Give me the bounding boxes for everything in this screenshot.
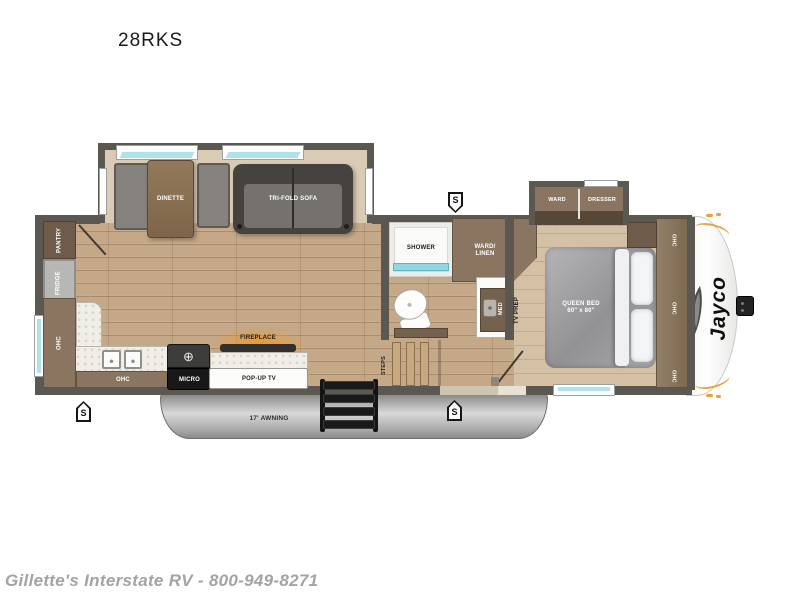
vanity-sink	[483, 299, 497, 317]
pop-up-tv-label: POP-UP TV	[228, 375, 290, 384]
bed-blanket	[615, 249, 629, 366]
page-title: 28RKS	[118, 30, 183, 52]
fireplace	[220, 344, 296, 352]
speaker-marker-letter: S	[447, 408, 462, 417]
ohc-label: OHC	[105, 376, 141, 385]
window	[365, 168, 373, 215]
bed-pillow	[631, 309, 653, 362]
kitchen-counter	[210, 352, 308, 369]
dinette-label: DINETTE	[151, 195, 190, 204]
dinette-table: DINETTE	[147, 160, 194, 238]
step	[420, 342, 429, 386]
bedroom-ohc-bank: OHC OHC OHC	[656, 218, 688, 388]
ohc-label: OHC	[54, 329, 66, 357]
window	[553, 384, 615, 396]
entry-steps	[320, 378, 378, 433]
shower: SHOWER	[389, 222, 453, 277]
ohc-label: OHC	[668, 363, 678, 389]
bedroom-corner-cabinet	[627, 222, 657, 248]
fireplace-label: FIREPLACE	[216, 334, 300, 343]
shower-label: SHOWER	[398, 244, 444, 253]
tv-prep-label: TV PREP	[513, 290, 522, 330]
queen-bed: QUEEN BED 60" x 80"	[545, 247, 656, 368]
fridge-label: FRIDGE	[53, 266, 65, 300]
speaker-marker: S	[448, 192, 463, 213]
awning-label: 17' AWNING	[238, 414, 300, 424]
speaker-marker: S	[76, 401, 91, 422]
dinette-bench	[197, 163, 230, 228]
entry-landing	[440, 386, 498, 395]
bath-threshold	[394, 328, 448, 338]
bedroom-door-opening	[498, 386, 526, 395]
dresser-label: DRESSER	[581, 196, 623, 204]
window	[99, 168, 107, 215]
tri-fold-sofa: TRI-FOLD SOFA	[233, 164, 353, 234]
dealer-footer: Gillette's Interstate RV - 800-949-8271	[5, 571, 318, 591]
ohc-label: OHC	[668, 295, 678, 321]
kitchen-ohc-base: OHC	[76, 371, 168, 388]
speaker-marker-letter: S	[448, 196, 463, 205]
sofa-label: TRI-FOLD SOFA	[249, 195, 337, 204]
ward-label: WARD	[537, 196, 577, 204]
step	[406, 342, 415, 386]
bed-pillow	[631, 252, 653, 305]
hitch	[736, 296, 754, 316]
microwave: MICRO	[167, 368, 210, 390]
bath-wall	[381, 222, 389, 340]
dinette-bench	[114, 163, 150, 230]
window	[222, 145, 304, 160]
sofa-foot	[237, 224, 242, 229]
cabinet-divider	[578, 189, 580, 219]
kitchen-sink	[102, 350, 142, 369]
step	[392, 342, 401, 386]
sofa-foot	[344, 224, 349, 229]
front-cap-accent-dash	[706, 394, 713, 397]
front-cap-accent-dash	[716, 395, 721, 398]
wall-front	[687, 217, 695, 390]
queen-bed-label: QUEEN BED 60" x 80"	[553, 299, 609, 317]
bedroom-slide: WARD DRESSER	[529, 181, 629, 225]
front-cap-accent-dash	[706, 214, 713, 217]
front-cap-accent-dash	[716, 213, 721, 216]
micro-label: MICRO	[172, 376, 207, 385]
ohc-label: OHC	[668, 227, 678, 253]
jayco-logo: Jayco	[702, 260, 736, 356]
step-riser	[438, 340, 441, 386]
pantry-label: PANTRY	[54, 225, 66, 255]
steps-label: STEPS	[380, 348, 389, 382]
shower-glass	[393, 263, 449, 271]
pantry: PANTRY	[43, 221, 76, 259]
jayco-logo-text: Jayco	[707, 276, 731, 341]
pop-up-tv: POP-UP TV	[209, 368, 308, 389]
window	[584, 180, 618, 187]
burner-icon: ⊕	[183, 350, 194, 363]
ward-linen-label: WARD/ LINEN	[461, 241, 509, 261]
kitchen-ohc-rear: OHC	[43, 298, 76, 388]
speaker-marker: S	[447, 400, 462, 421]
speaker-marker-letter: S	[76, 409, 91, 418]
range-cooktop: ⊕	[167, 344, 210, 368]
window	[116, 145, 198, 160]
floorplan-image: 28RKS Jayco 17' AWNING PANTRY F	[0, 0, 800, 600]
door-hinge	[491, 377, 499, 386]
